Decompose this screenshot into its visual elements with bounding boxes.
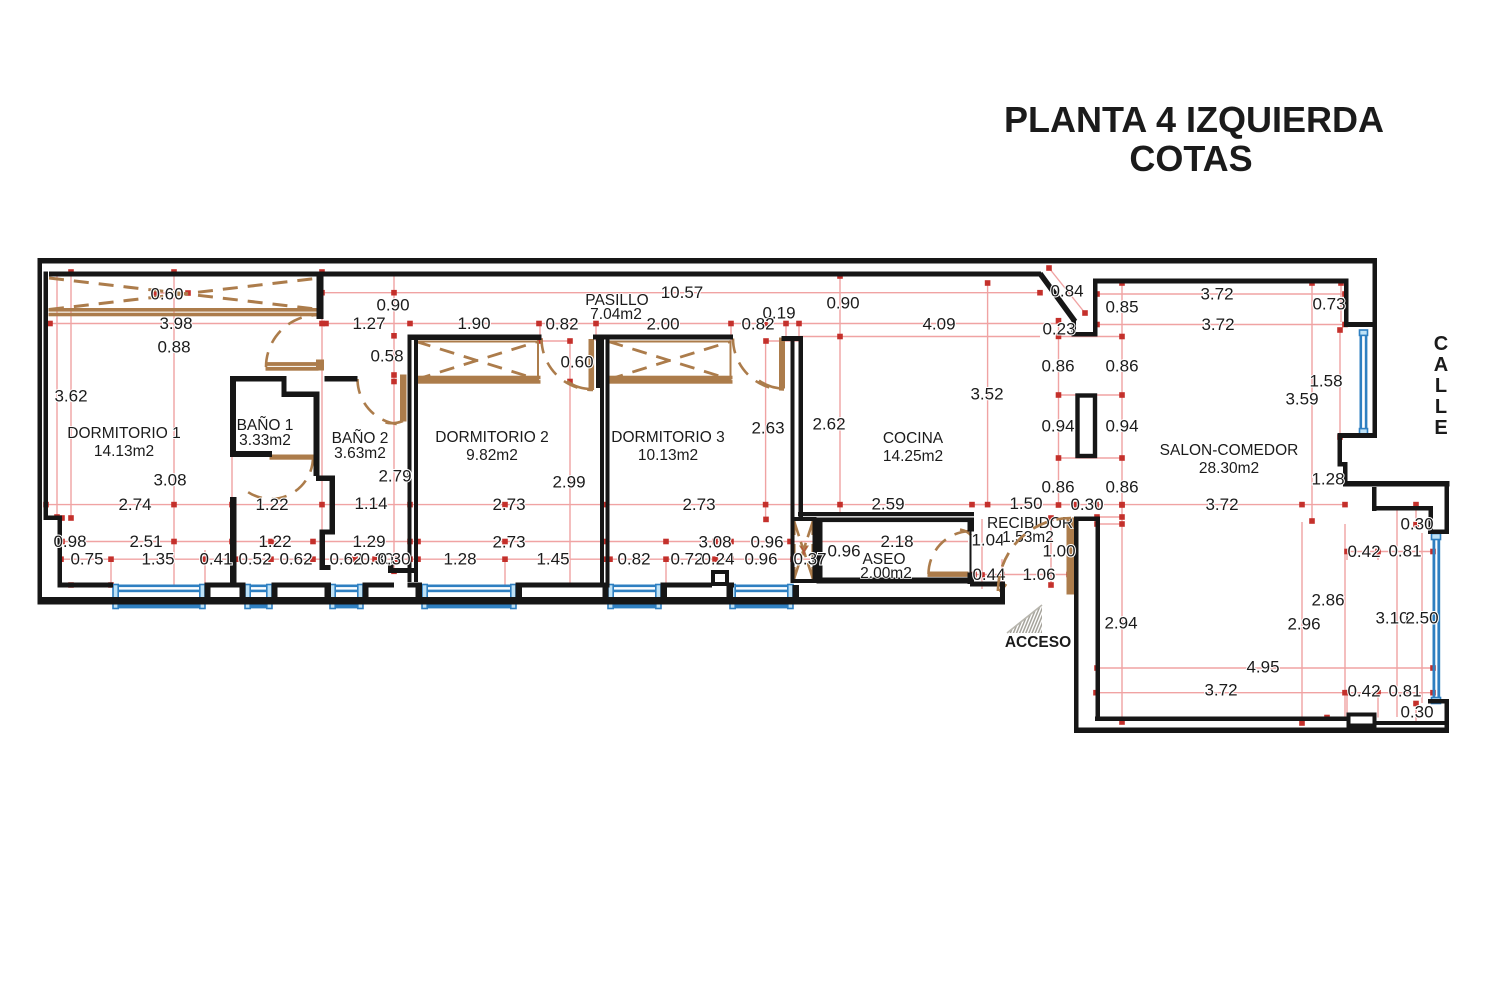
- svg-text:0.75: 0.75: [70, 550, 103, 569]
- svg-text:0.30: 0.30: [1070, 495, 1103, 514]
- svg-text:7.04m2: 7.04m2: [590, 306, 642, 323]
- svg-text:2.99: 2.99: [552, 473, 585, 492]
- svg-text:2.00: 2.00: [646, 315, 679, 334]
- svg-text:1.06: 1.06: [1022, 565, 1055, 584]
- svg-text:10.13m2: 10.13m2: [638, 447, 698, 464]
- svg-text:1.90: 1.90: [457, 314, 490, 333]
- svg-text:2.79: 2.79: [378, 467, 411, 486]
- svg-text:2.50: 2.50: [1405, 609, 1438, 628]
- svg-text:0.41: 0.41: [199, 550, 232, 569]
- svg-text:28.30m2: 28.30m2: [1199, 460, 1259, 477]
- svg-text:0.85: 0.85: [1105, 298, 1138, 317]
- svg-text:0.37: 0.37: [793, 550, 826, 569]
- svg-text:0.86: 0.86: [1105, 478, 1138, 497]
- svg-text:0.86: 0.86: [1105, 357, 1138, 376]
- svg-text:1.27: 1.27: [352, 314, 385, 333]
- svg-text:2.62: 2.62: [812, 415, 845, 434]
- svg-text:DORMITORIO 2: DORMITORIO 2: [435, 429, 548, 446]
- svg-text:0.82: 0.82: [545, 315, 578, 334]
- svg-text:A: A: [1434, 354, 1448, 376]
- svg-text:1.53m2: 1.53m2: [1002, 529, 1054, 546]
- svg-text:0.94: 0.94: [1041, 417, 1074, 436]
- svg-text:ACCESO: ACCESO: [1005, 634, 1071, 651]
- svg-text:4.09: 4.09: [922, 315, 955, 334]
- svg-text:4.95: 4.95: [1246, 658, 1279, 677]
- svg-text:1.14: 1.14: [354, 494, 387, 513]
- svg-text:0.86: 0.86: [1041, 478, 1074, 497]
- svg-text:0.82: 0.82: [617, 550, 650, 569]
- svg-text:0.84: 0.84: [1050, 282, 1083, 301]
- svg-text:14.25m2: 14.25m2: [883, 448, 943, 465]
- svg-text:0.81: 0.81: [1388, 682, 1421, 701]
- svg-text:2.18: 2.18: [880, 532, 913, 551]
- svg-text:2.94: 2.94: [1104, 614, 1137, 633]
- svg-text:DORMITORIO 1: DORMITORIO 1: [67, 425, 180, 442]
- svg-text:2.73: 2.73: [492, 532, 525, 551]
- svg-text:0.82: 0.82: [741, 315, 774, 334]
- svg-text:0.72: 0.72: [670, 550, 703, 569]
- svg-text:1.58: 1.58: [1309, 372, 1342, 391]
- svg-text:1.50: 1.50: [1009, 494, 1042, 513]
- svg-text:0.52: 0.52: [238, 550, 271, 569]
- svg-text:0.96: 0.96: [827, 542, 860, 561]
- svg-text:3.10: 3.10: [1375, 609, 1408, 628]
- svg-text:0.58: 0.58: [370, 347, 403, 366]
- svg-text:9.82m2: 9.82m2: [466, 447, 518, 464]
- svg-text:1.22: 1.22: [255, 495, 288, 514]
- svg-text:0.86: 0.86: [1041, 357, 1074, 376]
- svg-text:10.57: 10.57: [661, 283, 704, 302]
- svg-text:0.98: 0.98: [53, 532, 86, 551]
- svg-text:C: C: [1434, 333, 1448, 355]
- svg-text:COCINA: COCINA: [883, 430, 944, 447]
- svg-text:2.51: 2.51: [129, 532, 162, 551]
- svg-text:3.08: 3.08: [698, 532, 731, 551]
- svg-text:0.60: 0.60: [560, 353, 593, 372]
- svg-text:2.74: 2.74: [118, 495, 151, 514]
- svg-text:3.63m2: 3.63m2: [334, 445, 386, 462]
- svg-text:0.44: 0.44: [972, 565, 1005, 584]
- svg-text:2.96: 2.96: [1287, 615, 1320, 634]
- svg-text:L: L: [1435, 396, 1447, 418]
- svg-text:1.22: 1.22: [258, 532, 291, 551]
- svg-text:0.30: 0.30: [1400, 515, 1433, 534]
- svg-text:3.72: 3.72: [1200, 285, 1233, 304]
- svg-text:0.42: 0.42: [1347, 542, 1380, 561]
- svg-text:1.45: 1.45: [536, 550, 569, 569]
- svg-text:0.60: 0.60: [150, 285, 183, 304]
- svg-text:0.96: 0.96: [750, 532, 783, 551]
- svg-text:3.08: 3.08: [153, 471, 186, 490]
- svg-text:0.81: 0.81: [1388, 542, 1421, 561]
- svg-text:3.62: 3.62: [54, 387, 87, 406]
- svg-text:14.13m2: 14.13m2: [94, 443, 154, 460]
- svg-text:SALON-COMEDOR: SALON-COMEDOR: [1160, 442, 1299, 459]
- svg-text:2.73: 2.73: [682, 495, 715, 514]
- svg-text:COTAS: COTAS: [1129, 138, 1252, 179]
- svg-text:1.35: 1.35: [141, 550, 174, 569]
- svg-text:E: E: [1434, 417, 1447, 439]
- svg-text:L: L: [1435, 375, 1447, 397]
- svg-text:0.73: 0.73: [1312, 295, 1345, 314]
- svg-text:0.30: 0.30: [377, 550, 410, 569]
- svg-text:0.62: 0.62: [329, 550, 362, 569]
- svg-text:0.24: 0.24: [701, 550, 734, 569]
- svg-text:0.30: 0.30: [1400, 703, 1433, 722]
- svg-text:3.72: 3.72: [1204, 681, 1237, 700]
- svg-text:DORMITORIO 3: DORMITORIO 3: [611, 429, 724, 446]
- svg-text:0.23: 0.23: [1042, 320, 1075, 339]
- svg-text:1.29: 1.29: [352, 532, 385, 551]
- svg-text:1.04: 1.04: [971, 531, 1004, 550]
- svg-text:0.90: 0.90: [826, 294, 859, 313]
- svg-text:1.28: 1.28: [443, 550, 476, 569]
- svg-text:0.62: 0.62: [279, 550, 312, 569]
- svg-text:0.88: 0.88: [157, 338, 190, 357]
- svg-text:3.72: 3.72: [1205, 495, 1238, 514]
- svg-text:3.33m2: 3.33m2: [239, 432, 291, 449]
- svg-text:0.42: 0.42: [1347, 682, 1380, 701]
- svg-text:2.86: 2.86: [1311, 591, 1344, 610]
- svg-text:3.98: 3.98: [159, 314, 192, 333]
- svg-text:2.73: 2.73: [492, 495, 525, 514]
- svg-text:0.90: 0.90: [376, 296, 409, 315]
- svg-text:PLANTA 4 IZQUIERDA: PLANTA 4 IZQUIERDA: [1004, 99, 1384, 140]
- svg-text:3.72: 3.72: [1201, 315, 1234, 334]
- svg-text:0.96: 0.96: [744, 550, 777, 569]
- svg-text:2.59: 2.59: [871, 495, 904, 514]
- svg-text:3.52: 3.52: [970, 385, 1003, 404]
- svg-text:0.94: 0.94: [1105, 417, 1138, 436]
- svg-text:3.59: 3.59: [1285, 390, 1318, 409]
- svg-text:2.00m2: 2.00m2: [860, 565, 912, 582]
- svg-text:1.28: 1.28: [1311, 470, 1344, 489]
- svg-text:2.63: 2.63: [751, 419, 784, 438]
